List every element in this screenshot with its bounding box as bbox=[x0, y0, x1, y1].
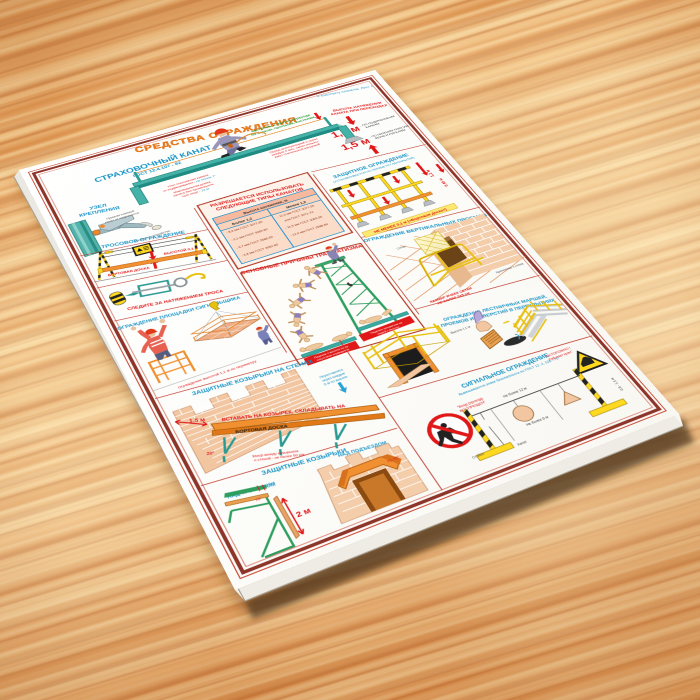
svg-text:1,1 м: 1,1 м bbox=[424, 169, 435, 178]
svg-text:ЗАЩИТНОЕ ОГРАЖДЕНИЕ: ЗАЩИТНОЕ ОГРАЖДЕНИЕ bbox=[332, 153, 411, 180]
svg-text:Высота 1,1 м: Высота 1,1 м bbox=[449, 325, 471, 335]
svg-text:Канат: Канат bbox=[516, 439, 529, 447]
svg-text:0,45 м: 0,45 м bbox=[438, 178, 449, 187]
svg-text:Вывешиваются знаки безопасност: Вывешиваются знаки безопасности по ГОСТ … bbox=[457, 356, 561, 397]
svg-text:0,8 - 1,1 м: 0,8 - 1,1 м bbox=[609, 377, 625, 391]
svg-text:СИГНАЛЬНОЕ ОГРАЖДЕНИЕ: СИГНАЛЬНОЕ ОГРАЖДЕНИЕ bbox=[460, 352, 552, 390]
svg-text:Сетка: Сетка bbox=[396, 244, 408, 250]
svg-text:2 м: 2 м bbox=[294, 506, 313, 520]
